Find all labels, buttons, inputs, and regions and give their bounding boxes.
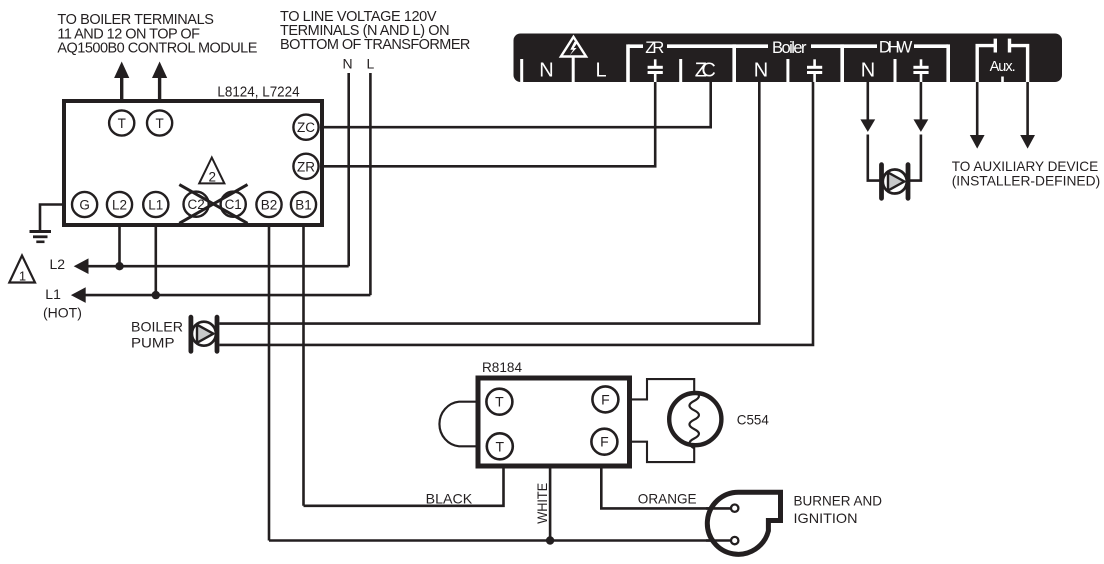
svg-text:ORANGE: ORANGE (638, 490, 697, 506)
svg-text:ZC: ZC (297, 120, 315, 135)
svg-text:G: G (79, 198, 90, 213)
svg-text:F: F (601, 391, 610, 407)
svg-text:L2: L2 (112, 198, 127, 213)
svg-text:BURNER AND: BURNER AND (794, 492, 883, 508)
svg-text:B2: B2 (261, 198, 278, 213)
svg-text:L1: L1 (45, 286, 61, 302)
svg-text:BOILER: BOILER (131, 318, 183, 334)
svg-text:Boiler: Boiler (772, 39, 807, 57)
svg-text:L: L (367, 56, 375, 72)
svg-text:C1: C1 (225, 197, 242, 212)
svg-text:BOTTOM OF TRANSFORMER: BOTTOM OF TRANSFORMER (280, 37, 470, 53)
svg-text:T: T (155, 116, 163, 131)
svg-text:F: F (600, 434, 609, 450)
svg-text:C554: C554 (737, 412, 769, 428)
svg-text:L: L (595, 60, 606, 82)
svg-text:PUMP: PUMP (131, 335, 175, 351)
svg-text:WHITE: WHITE (534, 483, 550, 524)
svg-text:T: T (496, 438, 505, 454)
svg-text:N: N (754, 60, 768, 82)
svg-text:N: N (343, 56, 353, 72)
svg-text:(HOT): (HOT) (43, 305, 82, 321)
svg-text:ZC: ZC (695, 60, 716, 82)
svg-text:L1: L1 (148, 198, 163, 213)
svg-text:L8124, L7224: L8124, L7224 (217, 85, 299, 101)
svg-text:2: 2 (209, 170, 217, 185)
svg-text:N: N (539, 60, 553, 82)
svg-text:AQ1500B0 CONTROL MODULE: AQ1500B0 CONTROL MODULE (57, 41, 257, 57)
svg-text:TO AUXILIARY DEVICE: TO AUXILIARY DEVICE (952, 158, 1098, 174)
svg-text:DHW: DHW (879, 39, 913, 57)
svg-text:T: T (118, 116, 126, 131)
svg-text:BLACK: BLACK (426, 491, 473, 507)
svg-text:ZR: ZR (297, 159, 315, 174)
svg-text:Aux.: Aux. (990, 59, 1016, 75)
svg-text:T: T (495, 394, 504, 410)
svg-text:N: N (861, 60, 875, 82)
svg-text:ZR: ZR (645, 39, 664, 57)
svg-text:L2: L2 (50, 256, 66, 272)
svg-text:IGNITION: IGNITION (794, 510, 858, 526)
svg-text:B1: B1 (295, 198, 312, 213)
svg-text:(INSTALLER-DEFINED): (INSTALLER-DEFINED) (952, 173, 1100, 189)
svg-text:1: 1 (19, 269, 26, 284)
svg-text:R8184: R8184 (482, 359, 522, 375)
